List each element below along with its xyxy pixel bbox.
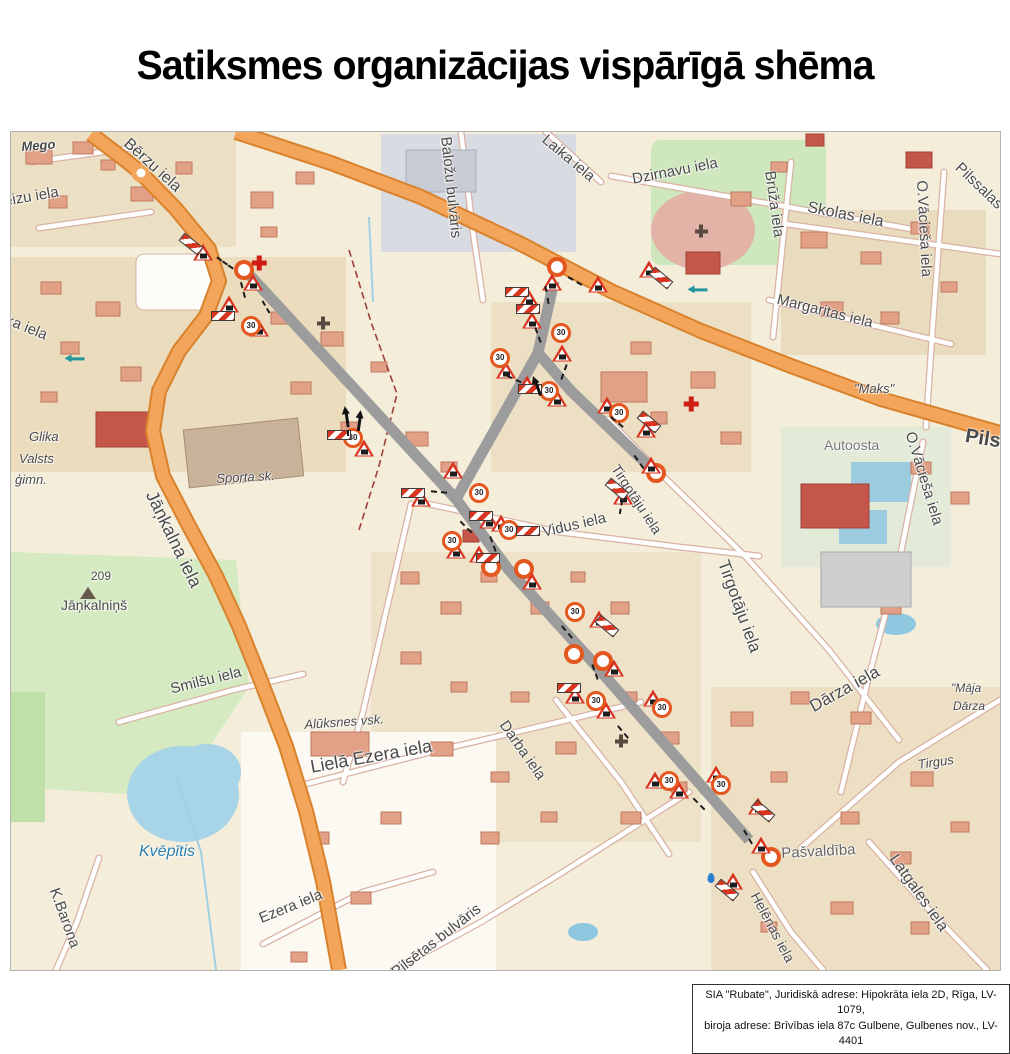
page: { "title": "Satiksmes organizācijas visp… xyxy=(0,0,1010,1024)
church-cross-icon xyxy=(619,735,623,748)
road-works-warning-sign-icon xyxy=(604,660,624,677)
water-point-icon xyxy=(708,873,715,883)
page-title: Satiksmes organizācijas vispārīgā shēma xyxy=(20,42,990,89)
pharmacy-cross-icon xyxy=(257,256,262,271)
road-works-warning-sign-icon xyxy=(522,573,542,590)
map-label-glika: Glika xyxy=(29,430,59,443)
caption-line-1: SIA "Rubate", Juridiskā adrese: Hipokrāt… xyxy=(705,989,996,1016)
road-works-warning-sign-icon xyxy=(751,837,771,854)
map-label-maks: "Maks" xyxy=(854,382,894,395)
road-closed-barrier-sign-icon xyxy=(401,488,425,498)
closure-endpoint-marker-icon xyxy=(564,644,584,664)
road-works-warning-sign-icon xyxy=(552,345,572,362)
leader-line-icon xyxy=(347,422,349,436)
contractor-caption: SIA "Rubate", Juridiskā adrese: Hipokrāt… xyxy=(692,984,1010,1054)
road-works-warning-sign-icon xyxy=(243,274,263,291)
speed-limit-30-sign-icon: 30 xyxy=(469,483,489,503)
map-label-dārza: Dārza xyxy=(953,700,985,712)
road-works-warning-sign-icon xyxy=(522,312,542,329)
map-label-mego: Mego xyxy=(21,138,56,153)
one-way-arrow-icon xyxy=(72,357,85,360)
road-closed-barrier-sign-icon xyxy=(469,511,493,521)
speed-limit-30-sign-icon: 30 xyxy=(490,348,510,368)
map-label-209: 209 xyxy=(91,570,111,582)
road-works-warning-sign-icon xyxy=(588,276,608,293)
road-closed-barrier-sign-icon xyxy=(516,304,540,314)
map-label-autoosta: Autoosta xyxy=(824,438,879,452)
road-closed-barrier-sign-icon xyxy=(476,553,500,563)
church-cross-icon xyxy=(321,317,325,330)
speed-limit-30-sign-icon: 30 xyxy=(659,771,679,791)
road-works-warning-sign-icon xyxy=(443,462,463,479)
hill-summit-triangle-icon xyxy=(80,587,96,599)
map-label-pašvaldība: Pašvaldība xyxy=(781,842,856,861)
map-label-jāņkalniņš: Jāņkalniņš xyxy=(61,598,127,612)
road-closed-barrier-sign-icon xyxy=(557,683,581,693)
speed-limit-30-sign-icon: 30 xyxy=(241,316,261,336)
road-works-warning-sign-icon xyxy=(641,457,661,474)
road-closed-barrier-sign-icon xyxy=(211,311,235,321)
pharmacy-cross-icon xyxy=(689,397,694,412)
map-label-valsts: Valsts xyxy=(19,452,54,465)
speed-limit-30-sign-icon: 30 xyxy=(565,602,585,622)
speed-limit-30-sign-icon: 30 xyxy=(652,698,672,718)
church-cross-icon xyxy=(699,225,703,238)
map-canvas: MegoBērzu ielaēizu ielalika ielaGlikaVal… xyxy=(10,131,1001,971)
speed-limit-30-sign-icon: 30 xyxy=(711,775,731,795)
speed-limit-30-sign-icon: 30 xyxy=(609,403,629,423)
speed-limit-30-sign-icon: 30 xyxy=(442,531,462,551)
speed-limit-30-sign-icon: 30 xyxy=(539,381,559,401)
road-closed-barrier-sign-icon xyxy=(516,526,540,536)
map-label-sporta-sk: Sporta sk. xyxy=(216,469,275,485)
road-closed-barrier-sign-icon xyxy=(505,287,529,297)
map-label-kvēpītis: Kvēpītis xyxy=(139,844,195,860)
map-label-māja: "Māja xyxy=(951,682,981,694)
road-works-warning-sign-icon xyxy=(219,296,239,313)
one-way-arrow-icon xyxy=(695,288,708,291)
map-label-ģimn: ģimn. xyxy=(15,473,47,486)
speed-limit-30-sign-icon: 30 xyxy=(551,323,571,343)
speed-limit-30-sign-icon: 30 xyxy=(586,691,606,711)
